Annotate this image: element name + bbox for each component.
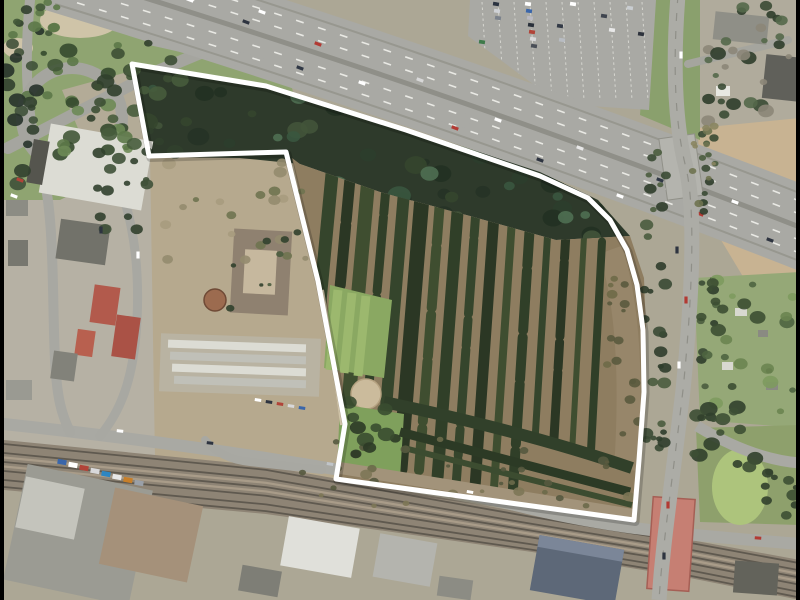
tree-blob	[777, 408, 784, 414]
tree-blob	[28, 21, 41, 32]
tree-blob	[91, 106, 100, 113]
tree-blob	[226, 305, 234, 312]
tree-blob	[760, 1, 772, 11]
tree-blob	[53, 4, 60, 10]
tree-blob	[48, 23, 60, 32]
tree-blob	[717, 305, 728, 314]
tree-blob	[736, 2, 749, 12]
vehicle	[136, 252, 139, 259]
tree-blob	[711, 324, 726, 336]
tree-blob	[114, 42, 122, 49]
tree-blob	[47, 59, 63, 72]
tree-blob	[623, 492, 635, 501]
building-southeast	[733, 561, 779, 596]
tree-blob	[766, 11, 776, 19]
tree-blob	[93, 184, 102, 191]
tree-blob	[216, 198, 224, 205]
tree-blob	[707, 278, 719, 288]
tree-blob	[702, 351, 713, 360]
tree-blob	[27, 125, 40, 135]
tree-blob	[111, 48, 125, 59]
vehicle	[675, 247, 678, 254]
tree-blob	[728, 47, 738, 55]
tree-blob	[67, 57, 79, 66]
garden-hut	[722, 362, 733, 370]
vehicle	[679, 52, 682, 59]
tree-blob	[13, 19, 21, 26]
tree-blob	[742, 461, 756, 472]
tree-blob	[726, 98, 741, 110]
tree-blob	[108, 114, 119, 123]
tree-blob	[6, 39, 19, 49]
tree-blob	[657, 377, 671, 388]
tree-blob	[378, 403, 393, 415]
tree-blob	[319, 493, 324, 497]
tree-blob	[143, 177, 149, 182]
tree-blob	[761, 363, 774, 373]
tree-blob	[195, 86, 214, 101]
tree-blob	[267, 283, 271, 286]
tree-blob	[644, 233, 652, 240]
small-building	[6, 200, 28, 216]
tree-blob	[8, 31, 18, 39]
tree-blob	[60, 43, 78, 57]
tree-blob	[707, 287, 713, 292]
tree-blob	[263, 238, 271, 245]
tree-blob	[124, 181, 131, 186]
tree-blob	[29, 84, 44, 96]
tree-blob	[603, 361, 611, 368]
tree-blob	[646, 172, 652, 177]
tree-blob	[104, 164, 116, 174]
tree-blob	[710, 123, 719, 130]
tree-blob	[558, 211, 574, 223]
tree-blob	[371, 504, 376, 508]
tree-blob	[702, 94, 715, 104]
tree-blob	[23, 97, 37, 108]
tree-blob	[758, 104, 774, 117]
tree-blob	[378, 428, 395, 441]
tree-blob	[658, 437, 671, 447]
tree-blob	[734, 425, 746, 435]
tree-blob	[499, 482, 503, 485]
tree-blob	[556, 495, 564, 501]
tree-blob	[101, 128, 117, 141]
tree-blob	[544, 480, 552, 487]
tree-blob	[360, 470, 372, 479]
tree-blob	[789, 387, 796, 392]
tree-blob	[788, 293, 798, 301]
tree-blob	[658, 279, 672, 290]
tree-blob	[41, 51, 47, 56]
tree-blob	[711, 298, 721, 306]
tree-blob	[403, 501, 410, 506]
tree-blob	[718, 99, 725, 105]
tree-blob	[644, 184, 656, 194]
red-roof-house	[89, 284, 120, 325]
tree-blob	[729, 407, 739, 415]
tree-blob	[721, 37, 732, 45]
red-roof-house	[74, 329, 95, 357]
tree-blob	[718, 83, 726, 90]
tree-blob	[302, 256, 308, 261]
tree-blob	[553, 192, 563, 200]
tree-blob	[36, 3, 46, 11]
vehicle	[755, 536, 762, 540]
tree-blob	[702, 191, 708, 196]
tree-blob	[756, 24, 767, 33]
tree-blob	[95, 212, 106, 221]
tree-blob	[625, 395, 636, 404]
tree-blob	[699, 280, 706, 285]
tree-blob	[761, 38, 768, 43]
tree-blob	[696, 313, 706, 321]
tree-blob	[273, 134, 283, 142]
vehicle	[666, 502, 669, 509]
tree-blob	[9, 93, 26, 107]
tree-blob	[282, 252, 292, 260]
tree-blob	[124, 213, 132, 220]
tree-blob	[621, 309, 625, 313]
tree-blob	[149, 86, 167, 100]
tree-blob	[775, 15, 787, 25]
tree-blob	[446, 464, 450, 467]
tree-blob	[144, 40, 153, 47]
tree-blob	[734, 358, 748, 369]
tree-blob	[501, 467, 506, 471]
tree-blob	[509, 480, 515, 485]
tree-blob	[226, 211, 236, 219]
tree-blob	[621, 281, 629, 288]
tree-blob	[293, 229, 301, 235]
tree-blob	[647, 154, 656, 161]
tree-blob	[94, 98, 106, 107]
tree-blob	[583, 503, 590, 508]
tree-blob	[657, 182, 663, 187]
tree-blob	[72, 106, 84, 116]
tree-blob	[513, 487, 524, 496]
tree-blob	[700, 208, 709, 215]
tree-blob	[274, 167, 287, 177]
tree-blob	[14, 164, 31, 177]
tree-blob	[160, 220, 171, 229]
tree-blob	[87, 115, 96, 122]
vehicle	[99, 227, 102, 234]
tree-blob	[603, 464, 610, 469]
tree-blob	[605, 460, 609, 464]
vehicle	[684, 297, 687, 304]
tree-blob	[699, 155, 706, 161]
tree-blob	[694, 200, 703, 207]
tree-blob	[657, 420, 665, 427]
tree-blob	[130, 158, 138, 164]
tree-blob	[281, 236, 289, 243]
tree-blob	[654, 346, 667, 357]
tree-blob	[705, 152, 712, 157]
tree-blob	[610, 276, 617, 282]
tree-blob	[640, 220, 653, 231]
aerial-photo-viewport	[0, 0, 800, 600]
tree-blob	[706, 176, 712, 181]
letterbox-left	[0, 0, 4, 600]
tree-blob	[781, 511, 792, 520]
tree-blob	[480, 489, 485, 493]
tree-blob	[259, 283, 263, 286]
vehicle	[662, 553, 665, 560]
letterbox-right	[796, 0, 800, 600]
gray-house	[50, 350, 78, 381]
tree-blob	[287, 131, 301, 142]
tree-blob	[713, 73, 719, 78]
tree-blob	[400, 446, 410, 454]
tree-blob	[580, 211, 590, 219]
tree-blob	[162, 255, 173, 264]
tree-blob	[750, 311, 766, 324]
tree-blob	[715, 413, 730, 425]
small-building	[8, 240, 28, 266]
tree-blob	[475, 186, 490, 198]
tree-blob	[712, 162, 716, 165]
tree-blob	[10, 53, 22, 63]
tree-blob	[518, 467, 525, 473]
tree-blob	[620, 300, 630, 308]
tree-blob	[29, 116, 38, 124]
tree-blob	[101, 185, 114, 195]
tree-blob	[94, 84, 103, 91]
tree-blob	[248, 110, 257, 117]
tree-blob	[228, 231, 236, 237]
tree-blob	[445, 192, 458, 203]
tree-blob	[276, 251, 283, 257]
tree-blob	[704, 57, 712, 63]
tree-blob	[131, 224, 143, 234]
tree-blob	[737, 49, 751, 60]
tree-blob	[7, 113, 23, 126]
tree-blob	[607, 335, 615, 342]
tree-blob	[656, 202, 668, 212]
tree-blob	[607, 301, 612, 305]
tree-blob	[180, 117, 192, 126]
tree-blob	[520, 447, 529, 454]
tree-blob	[728, 383, 737, 390]
tree-blob	[350, 449, 361, 458]
tree-blob	[729, 293, 736, 298]
tree-blob	[702, 125, 710, 131]
tree-blob	[719, 110, 729, 118]
tree-blob	[437, 437, 444, 442]
tree-blob	[653, 326, 666, 336]
tree-blob	[780, 312, 792, 321]
tree-blob	[611, 357, 621, 365]
tree-blob	[42, 91, 52, 99]
tree-blob	[703, 142, 709, 147]
tree-blob	[330, 485, 336, 490]
tree-blob	[689, 168, 696, 174]
tree-blob	[762, 469, 773, 478]
tree-blob	[701, 383, 708, 389]
dark-building-northeast	[762, 54, 800, 102]
tree-blob	[721, 354, 729, 360]
garden-hut	[758, 330, 768, 337]
tree-blob	[269, 187, 281, 196]
tree-blob	[722, 64, 729, 70]
tree-blob	[193, 197, 199, 202]
tree-blob	[775, 33, 784, 40]
tree-blob	[164, 55, 177, 65]
tree-blob	[155, 138, 164, 146]
tree-blob	[760, 79, 768, 85]
tree-blob	[763, 376, 779, 389]
tree-blob	[26, 61, 38, 71]
tree-blob	[504, 182, 515, 191]
tree-blob	[710, 47, 726, 60]
tree-blob	[783, 476, 794, 485]
tree-blob	[299, 470, 306, 476]
tree-blob	[716, 429, 724, 436]
tree-blob	[691, 141, 697, 146]
tree-blob	[689, 450, 699, 458]
tree-blob	[420, 166, 438, 180]
tree-blob	[660, 429, 667, 434]
tree-blob	[607, 290, 618, 299]
tree-blob	[223, 138, 235, 148]
tree-blob	[608, 283, 614, 288]
vehicle	[677, 362, 680, 369]
round-tank	[204, 289, 226, 311]
tree-blob	[23, 141, 32, 149]
tree-blob	[350, 421, 366, 434]
aerial-orthophoto	[0, 0, 800, 600]
tree-blob	[650, 207, 657, 212]
tree-blob	[661, 171, 671, 179]
tree-blob	[542, 490, 548, 495]
tree-blob	[709, 134, 718, 141]
tree-blob	[744, 97, 758, 108]
tree-blob	[761, 483, 770, 490]
tree-blob	[749, 282, 756, 288]
tree-blob	[701, 165, 710, 172]
tree-blob	[214, 87, 227, 97]
tree-blob	[737, 298, 751, 309]
tree-blob	[619, 431, 626, 436]
tree-blob	[333, 439, 340, 444]
tree-blob	[656, 262, 667, 270]
tree-blob	[268, 195, 280, 205]
tree-blob	[774, 40, 785, 49]
tree-blob	[363, 442, 376, 453]
tree-blob	[112, 153, 126, 164]
tree-blob	[703, 437, 720, 450]
tree-blob	[300, 120, 318, 134]
tree-blob	[127, 138, 142, 150]
tree-blob	[733, 460, 743, 468]
tree-blob	[93, 148, 106, 158]
tree-blob	[240, 255, 251, 264]
tree-blob	[658, 364, 664, 369]
tree-blob	[360, 148, 376, 161]
tree-blob	[21, 5, 32, 14]
tree-blob	[179, 204, 187, 210]
tree-blob	[697, 414, 706, 421]
tree-blob	[786, 54, 792, 59]
tree-blob	[761, 496, 772, 505]
tree-blob	[720, 335, 732, 345]
small-building	[6, 380, 32, 400]
tree-blob	[255, 191, 265, 199]
tree-blob	[58, 146, 72, 157]
tree-blob	[231, 263, 236, 267]
tree-blob	[629, 378, 640, 387]
tree-blob	[614, 336, 624, 344]
tree-blob	[187, 128, 209, 145]
